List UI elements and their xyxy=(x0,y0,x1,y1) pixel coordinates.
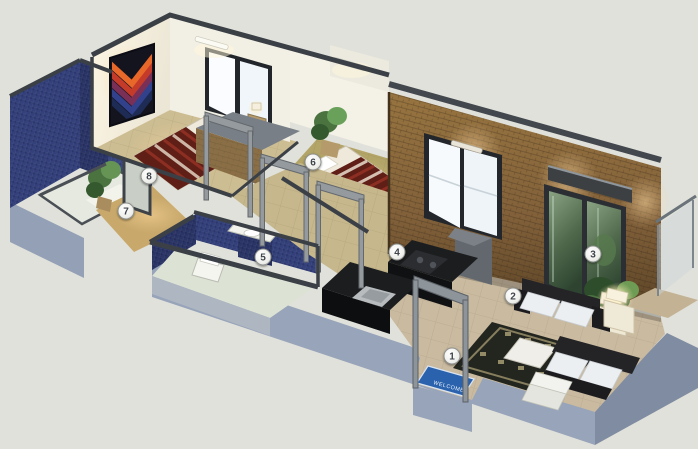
room-marker-5[interactable]: 5 xyxy=(255,249,272,266)
room-marker-1[interactable]: 1 xyxy=(444,348,461,365)
floor-plan-render: WELCOME xyxy=(0,0,698,449)
floor-plan-scene: WELCOME xyxy=(0,0,698,449)
wall-artwork xyxy=(110,44,154,126)
room-marker-8[interactable]: 8 xyxy=(141,168,158,185)
room-marker-6[interactable]: 6 xyxy=(305,154,322,171)
side-table-lamp xyxy=(602,282,634,334)
room-marker-3[interactable]: 3 xyxy=(585,246,602,263)
room-marker-2[interactable]: 2 xyxy=(505,288,522,305)
room-marker-4[interactable]: 4 xyxy=(389,244,406,261)
room-marker-7[interactable]: 7 xyxy=(118,203,135,220)
